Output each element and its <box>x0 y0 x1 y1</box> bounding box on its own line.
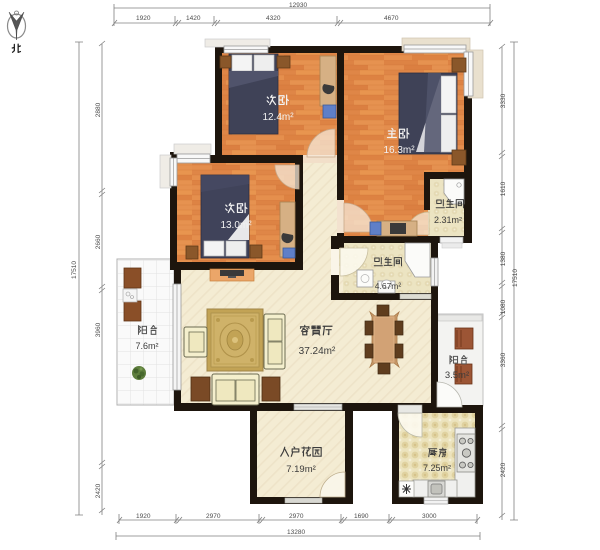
svg-text:1380: 1380 <box>500 251 507 266</box>
svg-text:3000: 3000 <box>422 513 437 520</box>
svg-text:1080: 1080 <box>500 299 507 314</box>
svg-text:13.0m²: 13.0m² <box>220 220 252 231</box>
svg-text:17510: 17510 <box>512 269 519 287</box>
svg-text:12930: 12930 <box>289 2 307 9</box>
svg-text:3360: 3360 <box>500 352 507 367</box>
svg-text:16.3m²: 16.3m² <box>383 145 415 156</box>
svg-text:7.25m²: 7.25m² <box>423 463 451 473</box>
svg-text:4.67m²: 4.67m² <box>375 281 402 291</box>
svg-text:3330: 3330 <box>500 93 507 108</box>
svg-text:2970: 2970 <box>206 513 221 520</box>
svg-text:12.4m²: 12.4m² <box>262 112 294 123</box>
svg-text:1690: 1690 <box>354 513 369 520</box>
svg-text:17510: 17510 <box>71 261 78 279</box>
svg-text:4320: 4320 <box>266 15 281 22</box>
svg-text:1920: 1920 <box>136 513 151 520</box>
svg-text:2880: 2880 <box>95 102 102 117</box>
svg-text:2970: 2970 <box>289 513 304 520</box>
svg-text:2.31m²: 2.31m² <box>434 215 462 225</box>
svg-text:2660: 2660 <box>95 234 102 249</box>
svg-text:1420: 1420 <box>186 15 201 22</box>
svg-text:37.24m²: 37.24m² <box>299 346 336 357</box>
svg-text:2420: 2420 <box>500 462 507 477</box>
svg-text:3960: 3960 <box>95 322 102 337</box>
svg-text:1920: 1920 <box>136 15 151 22</box>
svg-text:13280: 13280 <box>287 529 305 536</box>
svg-text:3.5m²: 3.5m² <box>445 370 469 381</box>
svg-text:7.19m²: 7.19m² <box>286 464 316 475</box>
svg-text:1610: 1610 <box>500 181 507 196</box>
svg-text:7.6m²: 7.6m² <box>135 341 158 351</box>
svg-text:2420: 2420 <box>95 483 102 498</box>
svg-text:4670: 4670 <box>384 15 399 22</box>
